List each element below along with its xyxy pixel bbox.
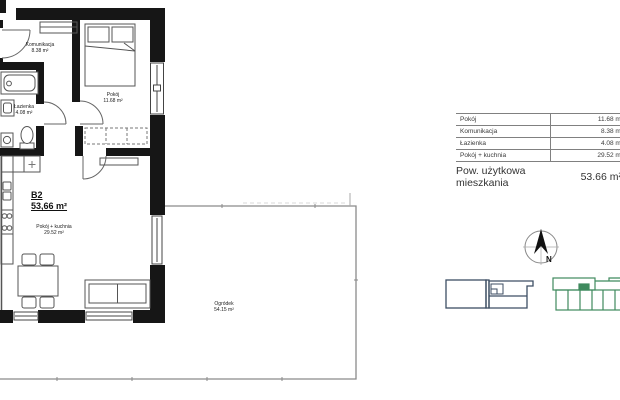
- bathroom-door: [44, 102, 66, 124]
- room-area: 54.15 m²: [214, 307, 234, 313]
- burner-4: [7, 226, 12, 231]
- furniture: [40, 22, 147, 165]
- washbasin-bowl: [4, 103, 12, 113]
- room-area: 4.08 m²: [14, 110, 34, 116]
- dining-table: [18, 266, 58, 296]
- toilet-bowl: [21, 127, 33, 144]
- wall-bottom-b: [38, 310, 85, 323]
- row-value: 4.08 m²: [551, 138, 620, 149]
- summary-value: 53.66 m²: [556, 171, 620, 183]
- wall-bedroom-left-upper: [72, 20, 80, 102]
- row-value: 11.68 m²: [551, 114, 620, 125]
- floor-plan-page: N Komunikacja 8.38 m² Pokój 11.68 m² Łaz…: [0, 0, 620, 400]
- chair-4: [40, 297, 54, 308]
- wall-bottom-a: [0, 310, 13, 323]
- wall-right-upper: [150, 8, 165, 62]
- area-table: Pokój 11.68 m² Komunikacja 8.38 m² Łazie…: [456, 113, 620, 189]
- bedroom-door: [80, 101, 103, 124]
- wall-bottom-c: [133, 310, 165, 323]
- wall-right-mid: [150, 115, 165, 215]
- wall-top-left-sliver: [0, 0, 6, 13]
- living-room-door: [83, 156, 106, 179]
- burner-1: [2, 214, 7, 219]
- green-unit-highlight: [579, 284, 589, 290]
- sink-bowl-2: [3, 192, 11, 200]
- navy-unit-inner: [491, 289, 497, 294]
- living-furniture: [18, 254, 150, 308]
- green-block-dividers: [568, 290, 615, 310]
- wall-top: [16, 8, 165, 20]
- room-area: 11.68 m²: [103, 98, 122, 104]
- unit-label: B2 53,66 m²: [31, 190, 67, 212]
- green-block-topright: [595, 278, 620, 281]
- chair-2: [40, 254, 54, 265]
- bedroom-wardrobe-dashed: [85, 128, 147, 144]
- bedroom-window-handle: [154, 85, 161, 91]
- chair-1: [22, 254, 36, 265]
- row-label: Pokój + kuchnia: [456, 150, 551, 161]
- row-value: 29.52 m²: [551, 150, 620, 161]
- table-row: Pokój 11.68 m²: [456, 114, 620, 126]
- compass-north-label: N: [546, 255, 552, 264]
- row-label: Łazienka: [456, 138, 551, 149]
- room-label-ogrodek: Ogródek 54.15 m²: [214, 301, 234, 313]
- bed-pillow-left: [88, 27, 109, 42]
- summary-label: Pow. użytkowa mieszkania: [456, 165, 556, 189]
- burner-3: [2, 226, 7, 231]
- boiler-icon: [29, 161, 36, 168]
- unit-code: B2: [31, 190, 67, 201]
- table-row: Łazienka 4.08 m²: [456, 138, 620, 150]
- sink-bowl-1: [3, 182, 11, 190]
- building-keyplan-green: [553, 278, 620, 310]
- wall-bedroom-left-lower: [75, 126, 83, 156]
- row-label: Pokój: [456, 114, 551, 125]
- room-label-pokoj-kuchnia: Pokój + kuchnia 29.52 m²: [36, 224, 71, 236]
- bed-blanket-fold: [85, 43, 135, 51]
- burner-2: [7, 214, 12, 219]
- wall-left-upper: [0, 20, 3, 28]
- stove: [1, 210, 13, 234]
- room-label-komunikacja: Komunikacja 8.38 m²: [26, 42, 55, 54]
- navy-block-left: [446, 280, 486, 308]
- washing-machine-drum-icon: [3, 136, 10, 143]
- unit-total-area: 53,66 m²: [31, 201, 67, 212]
- wall-left-entry: [0, 58, 3, 62]
- bed-pillow-right: [112, 27, 133, 42]
- room-area: 29.52 m²: [36, 230, 71, 236]
- room-label-pokoj: Pokój 11.68 m²: [103, 92, 122, 104]
- bathtub-tap-icon: [7, 81, 12, 86]
- room-area: 8.38 m²: [26, 48, 55, 54]
- green-block-lower: [556, 290, 620, 310]
- chair-3: [22, 297, 36, 308]
- table-summary-row: Pow. użytkowa mieszkania 53.66 m²: [456, 162, 620, 189]
- table-row: Pokój + kuchnia 29.52 m²: [456, 150, 620, 162]
- compass-rose: N: [523, 229, 559, 265]
- wall-bath-top: [0, 62, 44, 70]
- row-value: 8.38 m²: [551, 126, 620, 137]
- row-label: Komunikacja: [456, 126, 551, 137]
- room-label-lazienka: Łazienka 4.08 m²: [14, 104, 34, 116]
- plan-graphics: N: [0, 0, 620, 400]
- table-row: Komunikacja 8.38 m²: [456, 126, 620, 138]
- wall-bath-right-lower: [36, 126, 44, 148]
- building-keyplan-navy: [446, 280, 533, 308]
- bed: [85, 24, 135, 86]
